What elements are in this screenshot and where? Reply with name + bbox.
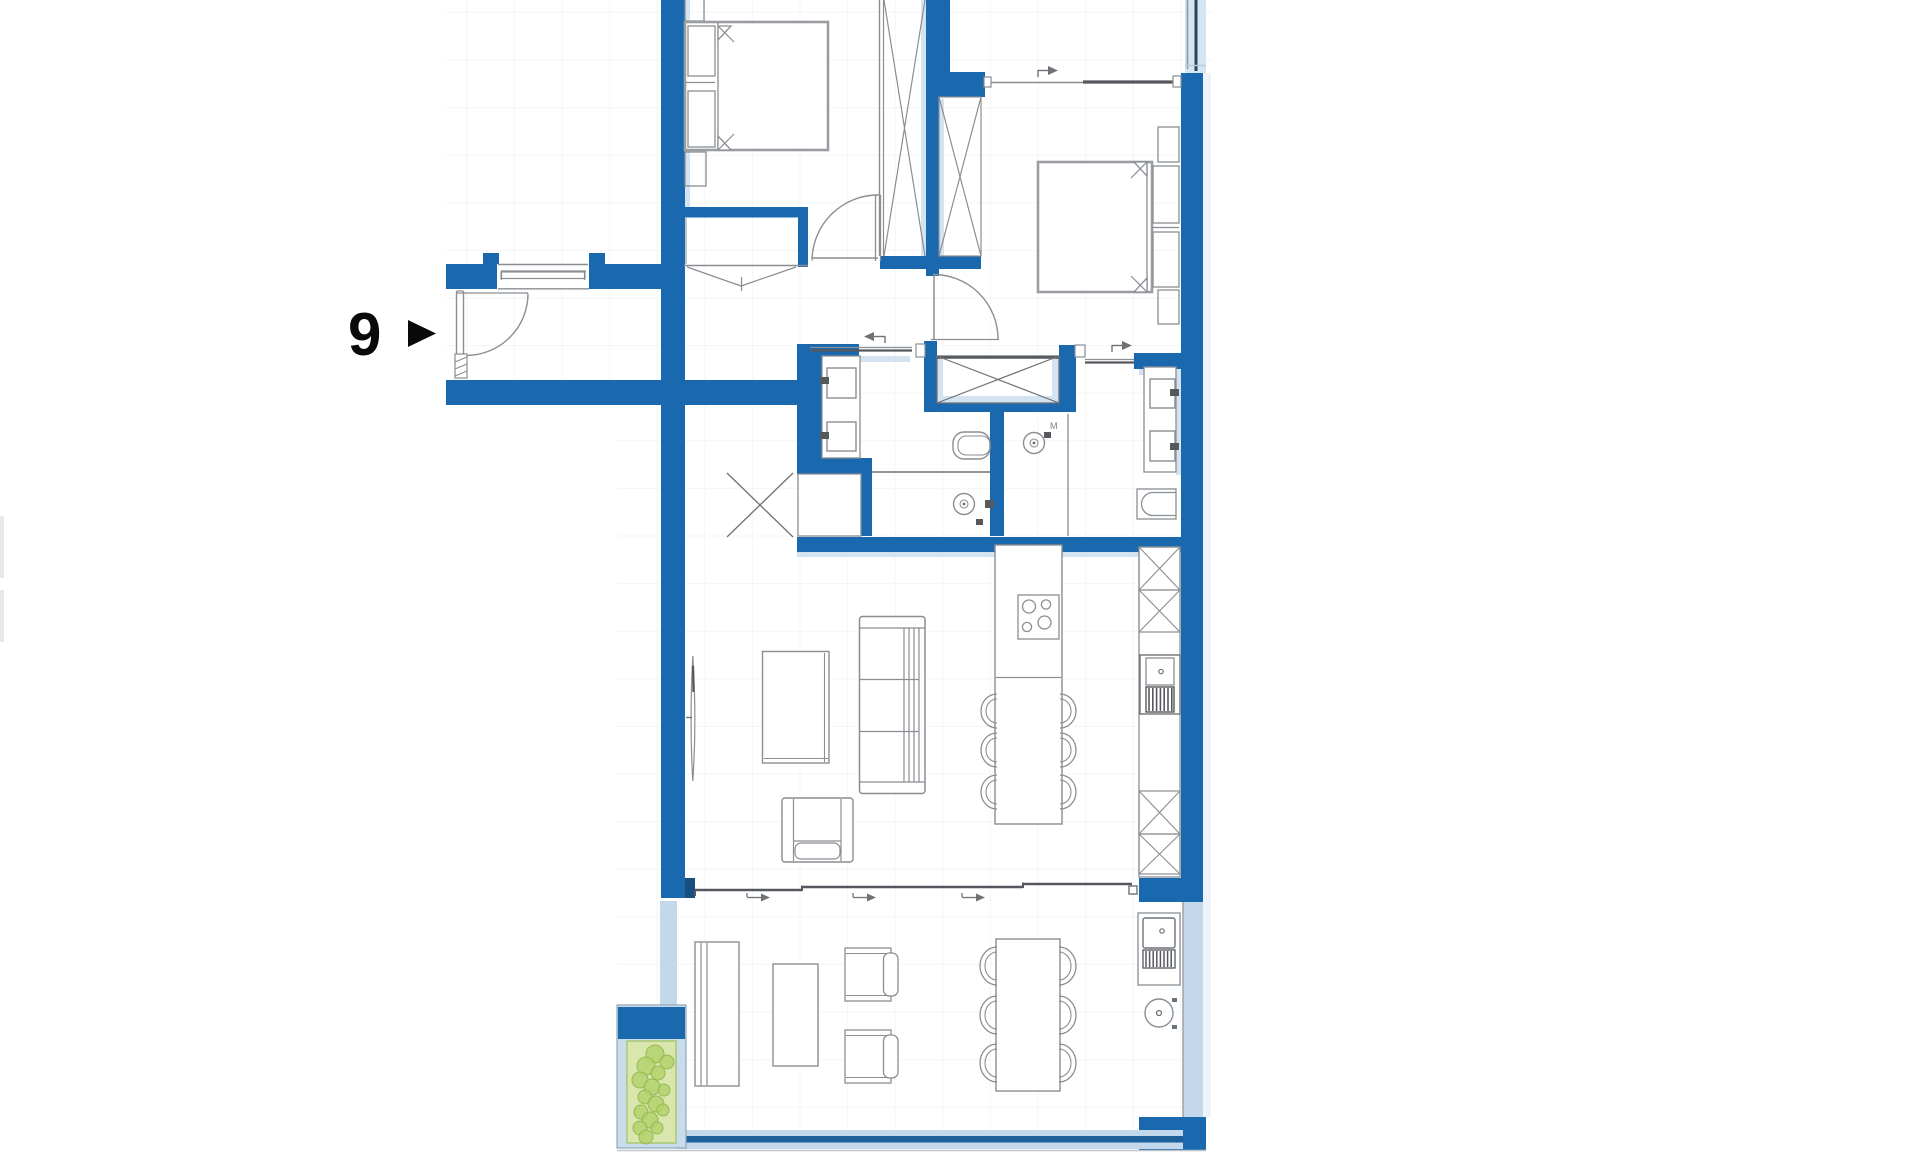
svg-text:M: M bbox=[1050, 421, 1058, 431]
svg-text:9: 9 bbox=[348, 301, 381, 368]
